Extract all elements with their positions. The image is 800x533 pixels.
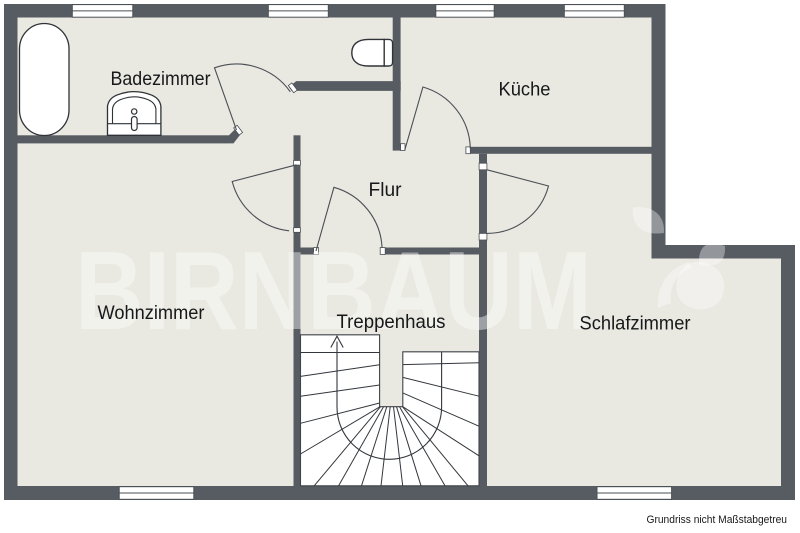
svg-text:Flur: Flur xyxy=(369,179,402,201)
svg-text:BIRNBAUM: BIRNBAUM xyxy=(75,229,592,353)
svg-text:Küche: Küche xyxy=(499,78,551,100)
svg-text:Badezimmer: Badezimmer xyxy=(111,68,211,90)
svg-text:Treppenhaus: Treppenhaus xyxy=(337,311,446,333)
svg-text:Schlafzimmer: Schlafzimmer xyxy=(580,313,691,335)
svg-text:Grundriss nicht Maßstabgetreu: Grundriss nicht Maßstabgetreu xyxy=(647,514,788,526)
svg-text:Wohnzimmer: Wohnzimmer xyxy=(98,302,205,324)
